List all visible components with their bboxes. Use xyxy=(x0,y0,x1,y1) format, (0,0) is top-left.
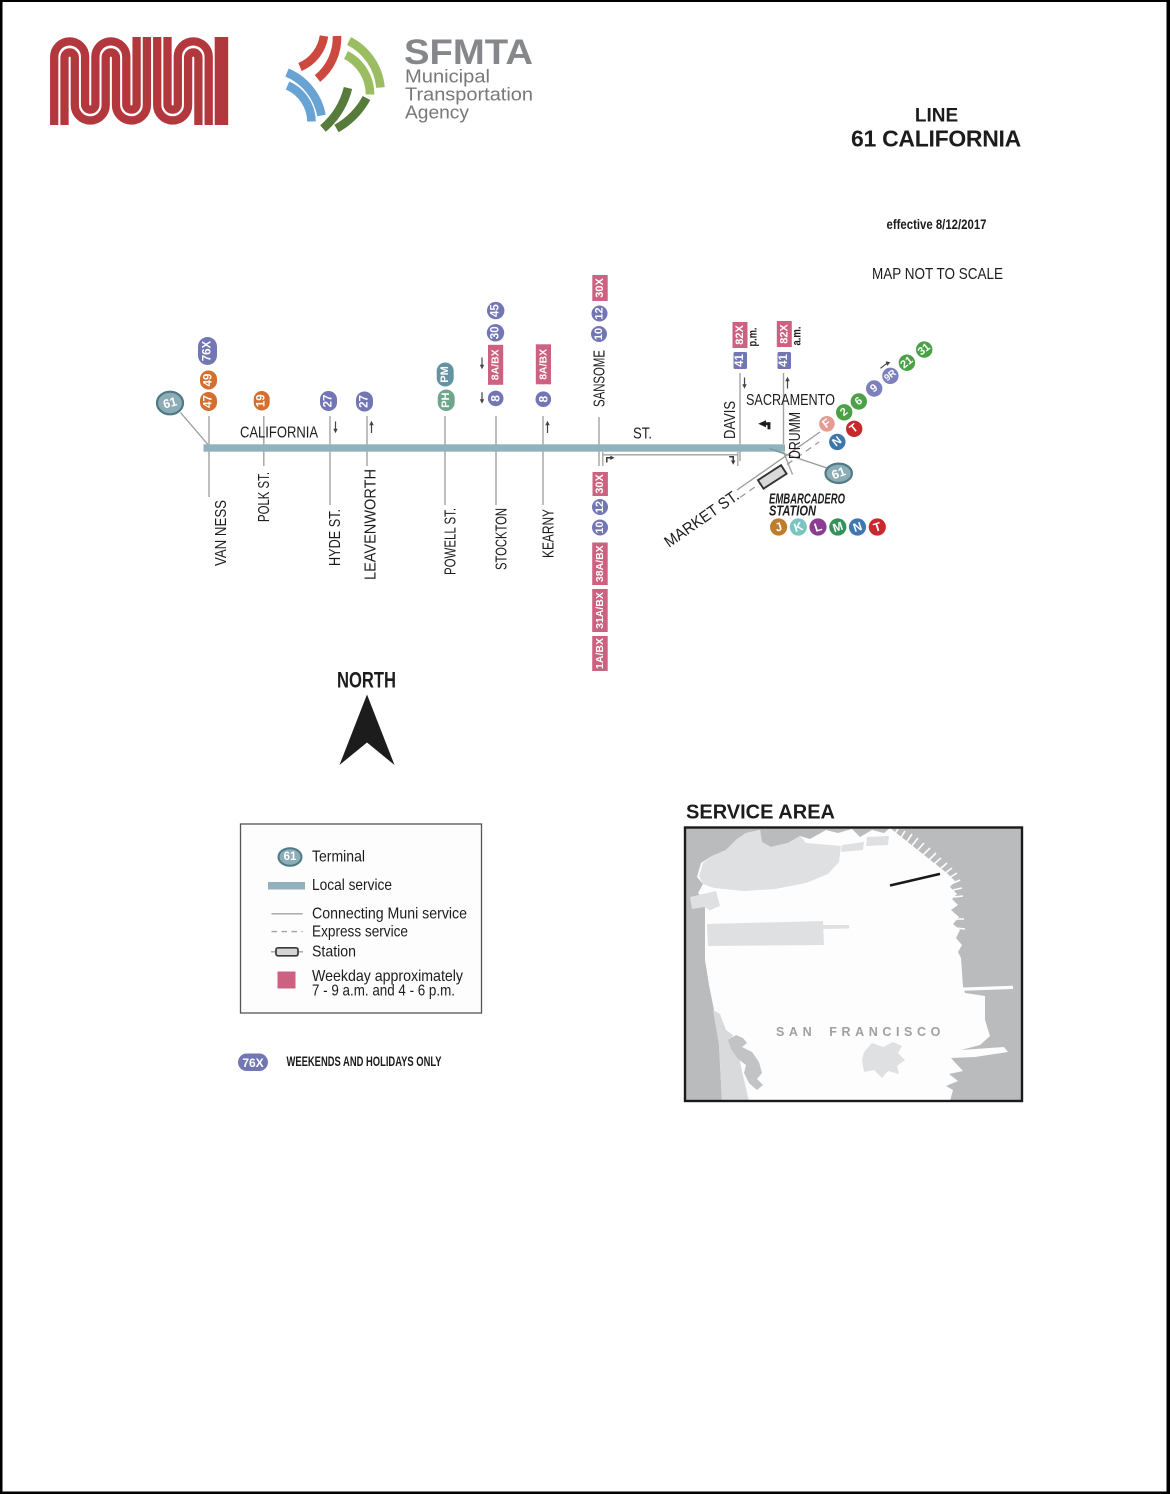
svg-text:10: 10 xyxy=(594,521,606,533)
svg-text:STATION: STATION xyxy=(769,503,817,520)
svg-text:SACRAMENTO: SACRAMENTO xyxy=(746,392,835,409)
svg-text:12: 12 xyxy=(594,307,606,319)
svg-text:Express service: Express service xyxy=(312,924,408,941)
svg-text:KEARNY: KEARNY xyxy=(540,509,557,558)
svg-text:Station: Station xyxy=(312,944,356,961)
svg-text:LINE: LINE xyxy=(915,106,958,127)
svg-text:POWELL ST.: POWELL ST. xyxy=(442,508,459,575)
svg-text:Local service: Local service xyxy=(312,877,392,894)
svg-text:31: 31 xyxy=(916,341,933,358)
svg-text:7 - 9 a.m. and 4 - 6 p.m.: 7 - 9 a.m. and 4 - 6 p.m. xyxy=(312,983,455,1000)
svg-text:8: 8 xyxy=(536,396,550,403)
svg-text:45: 45 xyxy=(490,304,502,317)
svg-text:61: 61 xyxy=(284,851,297,863)
svg-text:47: 47 xyxy=(203,395,215,408)
svg-text:POLK ST.: POLK ST. xyxy=(256,472,273,522)
svg-text:NORTH: NORTH xyxy=(337,668,396,693)
svg-text:8A/BX: 8A/BX xyxy=(537,349,549,380)
svg-text:21: 21 xyxy=(898,354,915,371)
svg-text:19: 19 xyxy=(256,394,268,407)
svg-text:DAVIS: DAVIS xyxy=(722,401,739,439)
svg-text:8: 8 xyxy=(489,395,503,402)
svg-text:76X: 76X xyxy=(202,340,214,361)
svg-text:VAN NESS: VAN NESS xyxy=(213,500,230,566)
svg-text:HYDE ST.: HYDE ST. xyxy=(327,509,344,566)
svg-text:Municipal: Municipal xyxy=(405,67,490,87)
svg-text:1A/BX: 1A/BX xyxy=(594,638,606,669)
svg-text:30X: 30X xyxy=(594,474,606,494)
svg-text:41: 41 xyxy=(778,354,790,367)
svg-text:41: 41 xyxy=(734,354,746,367)
svg-text:8A/BX: 8A/BX xyxy=(490,349,502,380)
svg-text:30X: 30X xyxy=(594,278,606,298)
svg-text:49: 49 xyxy=(203,374,215,387)
svg-text:76X: 76X xyxy=(242,1056,263,1070)
svg-text:31A/BX: 31A/BX xyxy=(594,592,606,629)
svg-text:a.m.: a.m. xyxy=(790,327,804,346)
svg-text:SERVICE AREA: SERVICE AREA xyxy=(686,802,835,824)
svg-text:61 CALIFORNIA: 61 CALIFORNIA xyxy=(851,126,1021,152)
svg-text:CALIFORNIA: CALIFORNIA xyxy=(240,425,318,442)
svg-text:SANSOME: SANSOME xyxy=(592,350,609,407)
svg-text:27: 27 xyxy=(323,395,335,408)
svg-text:SANFRANCISCO: SANFRANCISCO xyxy=(776,1025,945,1039)
svg-text:27: 27 xyxy=(359,395,371,408)
svg-text:MARKET ST.: MARKET ST. xyxy=(662,487,743,551)
svg-text:PH: PH xyxy=(440,393,452,408)
svg-text:12: 12 xyxy=(594,501,606,513)
svg-text:MAP NOT TO SCALE: MAP NOT TO SCALE xyxy=(872,266,1003,283)
svg-text:DRUMM: DRUMM xyxy=(787,412,804,459)
svg-text:82X: 82X xyxy=(778,324,790,344)
svg-text:WEEKENDS AND HOLIDAYS ONLY: WEEKENDS AND HOLIDAYS ONLY xyxy=(287,1053,442,1069)
svg-text:ST.: ST. xyxy=(633,426,652,443)
svg-text:Agency: Agency xyxy=(405,103,469,123)
svg-text:30: 30 xyxy=(490,326,502,339)
svg-text:38A/BX: 38A/BX xyxy=(594,545,606,582)
svg-text:PM: PM xyxy=(439,366,451,383)
svg-text:82X: 82X xyxy=(734,325,746,345)
svg-text:STOCKTON: STOCKTON xyxy=(493,508,510,570)
svg-text:10: 10 xyxy=(593,328,605,340)
svg-text:LEAVENWORTH: LEAVENWORTH xyxy=(362,469,379,580)
svg-text:p.m.: p.m. xyxy=(746,328,760,347)
svg-text:Terminal: Terminal xyxy=(312,849,365,866)
svg-text:Connecting Muni service: Connecting Muni service xyxy=(312,906,467,923)
svg-text:Transportation: Transportation xyxy=(405,85,533,105)
svg-text:effective 8/12/2017: effective 8/12/2017 xyxy=(887,216,987,232)
